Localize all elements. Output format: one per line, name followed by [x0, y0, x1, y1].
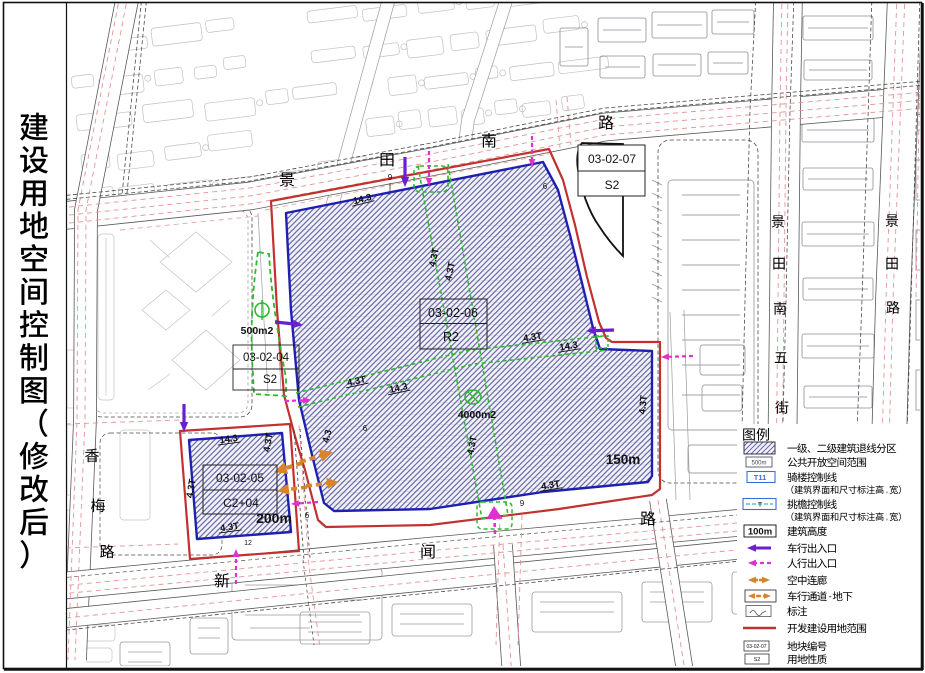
svg-text:R2: R2 — [443, 330, 459, 344]
svg-text:500m: 500m — [751, 461, 766, 467]
svg-text:200m: 200m — [256, 510, 292, 526]
svg-text:4.3T: 4.3T — [637, 395, 650, 415]
svg-text:03-02-07: 03-02-07 — [588, 152, 636, 166]
svg-text:-: - — [829, 592, 832, 603]
svg-text:150m: 150m — [606, 452, 641, 467]
svg-text:T11: T11 — [754, 473, 767, 482]
svg-text:03-02-06: 03-02-06 — [428, 306, 478, 320]
svg-text:03-02-04: 03-02-04 — [243, 352, 290, 364]
svg-text:6: 6 — [305, 511, 310, 520]
svg-text:T: T — [758, 502, 763, 509]
svg-text:S2: S2 — [754, 657, 761, 663]
svg-text:12: 12 — [244, 540, 252, 547]
svg-text:100m: 100m — [748, 527, 772, 538]
svg-text:03-02-07: 03-02-07 — [746, 644, 766, 650]
svg-text:03-02-05: 03-02-05 — [216, 471, 264, 485]
svg-text:9: 9 — [520, 499, 525, 508]
svg-text:S2: S2 — [263, 374, 277, 386]
svg-text:,: , — [886, 512, 888, 522]
svg-text:6: 6 — [363, 424, 368, 433]
svg-text:4000m2: 4000m2 — [458, 409, 497, 421]
svg-text:500m2: 500m2 — [241, 325, 274, 337]
svg-text:6: 6 — [543, 182, 548, 191]
svg-text:,: , — [886, 485, 888, 495]
svg-text:C2+04: C2+04 — [223, 496, 259, 510]
svg-text:9: 9 — [388, 173, 393, 182]
svg-text:S2: S2 — [605, 178, 620, 192]
